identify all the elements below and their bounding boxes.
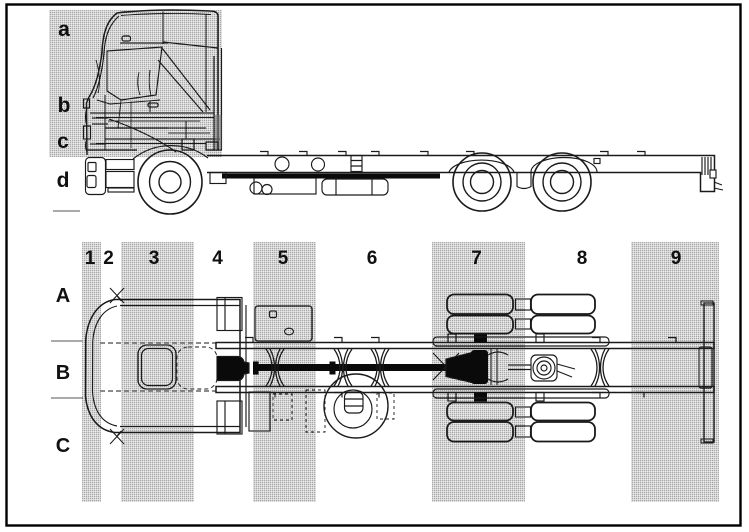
svg-text:b: b — [58, 94, 71, 117]
svg-text:4: 4 — [212, 248, 223, 269]
svg-text:8: 8 — [577, 248, 588, 269]
svg-text:a: a — [58, 18, 70, 41]
svg-text:3: 3 — [149, 248, 160, 269]
svg-text:A: A — [56, 285, 70, 307]
svg-text:1: 1 — [85, 248, 96, 269]
svg-text:5: 5 — [278, 248, 289, 269]
svg-text:2: 2 — [103, 248, 114, 269]
svg-text:d: d — [57, 169, 70, 192]
svg-text:6: 6 — [367, 248, 378, 269]
svg-text:7: 7 — [471, 248, 482, 269]
svg-text:C: C — [56, 435, 70, 457]
svg-text:B: B — [56, 362, 70, 384]
svg-text:c: c — [57, 130, 69, 153]
svg-text:9: 9 — [671, 248, 682, 269]
